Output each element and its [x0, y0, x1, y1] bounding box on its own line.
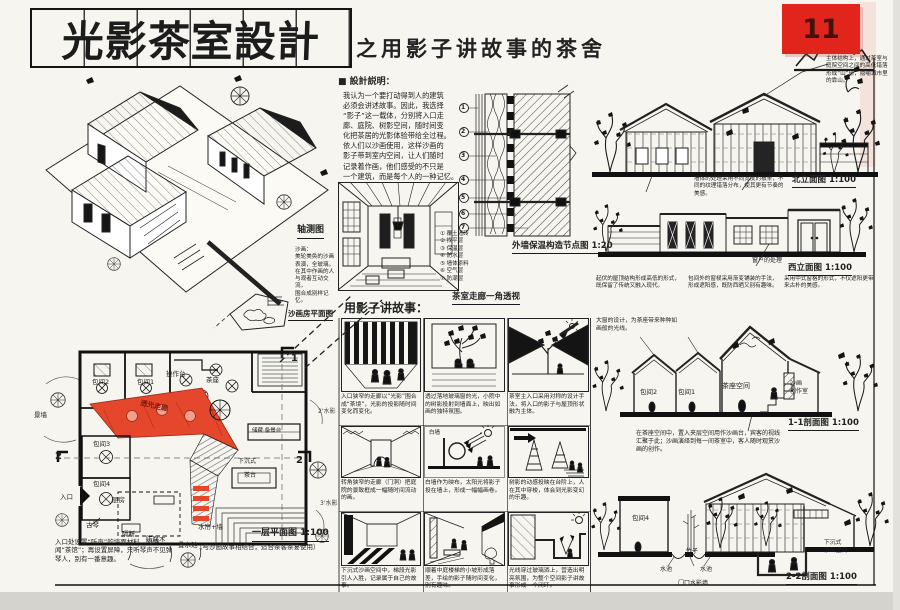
- presentation-board: 光影茶室設計 之用影子讲故事的茶舍 11 ■ 設計説明： 我认为一个要打动得到人…: [0, 0, 900, 610]
- scan-edge-bottom: [0, 592, 900, 610]
- plan-caption-note: （与沙画故事相结合，适合茶客茶宴使用）: [196, 543, 320, 551]
- design-notes-heading: ■ 設計説明：: [338, 77, 395, 89]
- north-elevation-note-top: 主体结构上，通过茶室与庭院空间之间的高低错落形成“山”形，隐喻城市里的靠山。: [826, 56, 888, 85]
- west-elevation-note-2: 包间外的窗棂采用渐变铺装的手法，形成遮阳感，既防西晒又别有趣味。: [688, 276, 778, 291]
- axonometric-drawing: [46, 75, 328, 304]
- plan-tea-table: 茶台: [244, 472, 256, 480]
- plan-sunken-label: 下沉式: [238, 458, 256, 466]
- plan-section-marker-2l: 2: [55, 450, 62, 463]
- story-caption-8: 顺着中庭楼梯的小坡形成落差，手绘的影子随时间变化，别有趣味。: [425, 568, 505, 591]
- design-notes-body: 我认为一个要打动得到人的建筑 必须会讲述故事。因此，我选择 “影子”这一载体，分…: [343, 91, 461, 182]
- story-caption-7: 下沉式沙画空间中，梯段光影引人入胜，记录属于自己的故事。: [341, 568, 421, 591]
- plan-guqin: 古琴: [86, 521, 99, 529]
- detail-callout-4: 4: [461, 176, 465, 183]
- scan-edge-right: [893, 0, 900, 610]
- story-caption-9: 光线穿过玻璃洒上，营造出明亮氛围，为整个空间影子讲故事形成一个闭环。: [509, 568, 589, 591]
- story-panel-3: [509, 319, 589, 392]
- plan-room-1: 包间1: [137, 378, 154, 386]
- west-elevation-note-1: 起伏的屋顶结构形成高低的形式，既保留了传统又融入现代。: [596, 276, 682, 291]
- section-1-1-drawing: [592, 327, 878, 431]
- story-panel-4: [342, 427, 421, 478]
- plan-caption: 一层平面图 1:100: [252, 528, 329, 542]
- story-caption-6: 树影的动感投映在台阶上，人在其中穿梭，体会到光影变幻的乐趣。: [509, 480, 589, 503]
- section11-studio: 沙画 创作室: [790, 380, 818, 396]
- section22-room-4: 包间4: [632, 514, 649, 522]
- detail-callout-6: 6: [461, 210, 465, 217]
- story-caption-4: 转角狭窄的走廊（门洞）把庭院的景致框成一幅随时间流动的画。: [341, 480, 421, 503]
- story-panel-2: [425, 319, 505, 392]
- storyboard-heading: 用影子讲故事：: [344, 301, 428, 317]
- section11-tea-space: 茶座空间: [722, 382, 750, 391]
- section11-note-bottom: 在茶座空间中，置入夹层空间用作沙画台，宾客的视线汇聚于此；沙画演绎到每一间茶室中…: [636, 430, 784, 453]
- plan-section-marker-2r: 2: [296, 454, 303, 467]
- plan-pool: 叠水池: [178, 541, 198, 549]
- detail-callout-5: 5: [461, 194, 465, 201]
- section-2-2-drawing: [591, 474, 889, 575]
- west-elevation-caption: 西立面图 1:100: [788, 263, 852, 276]
- section22-pool-2: 水池: [700, 566, 712, 574]
- page-subtitle: 之用影子讲故事的茶舍: [356, 36, 606, 63]
- mini-plan-sketch: [214, 294, 288, 330]
- section11-room-2: 包间2: [640, 388, 657, 396]
- story-caption-3: 茶室主入口采用对称的设计手法，将入口的影子与屋顶形状融为主体。: [509, 394, 589, 417]
- wall-detail-drawing: [460, 85, 577, 236]
- detail-callout-3: 3: [461, 152, 465, 159]
- sheet-number-badge: 11: [782, 4, 860, 54]
- plan-mark-b: 3'水影: [320, 500, 337, 508]
- section22-sunken-label: 下沉式 沙画空间: [824, 540, 856, 555]
- perspective-caption: 茶室走廊一角透视: [452, 292, 520, 305]
- axonometric-label: 轴测图: [297, 225, 324, 239]
- story-panel-1: [342, 319, 421, 392]
- plan-storage: 储藏·备餐台: [252, 428, 281, 435]
- section22-gate-wall: 门口水影墙: [678, 580, 708, 588]
- north-elevation-caption: 北立面图 1:100: [792, 175, 856, 188]
- plan-tea-area: 茶座: [206, 376, 219, 384]
- section22-bamboo: 竹子: [686, 548, 698, 556]
- north-elevation-note-bottom: 墙体的处理采用不同宽度的板条，不同的纹理错落分布，使其更有节奏的美感。: [694, 176, 788, 198]
- plan-room-2: 包间2: [92, 378, 109, 386]
- detail-callout-7: 7: [461, 224, 465, 231]
- plan-section-marker-1: 1: [291, 352, 298, 365]
- sheet-number: 11: [802, 14, 840, 45]
- detail-callout-1: 1: [461, 104, 465, 111]
- section11-note-top: 大窗的设计，为茶座带来种种如画般的光线。: [596, 318, 680, 333]
- wall-detail-legend: ① 覆土墙砖 ② 找平层 ③ 保温层 ④ 防水层 ⑤ 墙体原料 ⑥ 空气层 ⑦ …: [440, 231, 469, 283]
- mini-plan-caption: 沙画房平面图: [288, 309, 333, 321]
- page-title-text: 光影茶室設計: [61, 8, 321, 69]
- west-elevation-window-label: 窗户的处理: [752, 257, 782, 265]
- plan-water-curtain: 水帘+墙: [198, 523, 223, 531]
- wall-detail-caption: 外墙保温构造节点图 1:20: [512, 241, 613, 254]
- white-wall-label: 白墙: [429, 430, 440, 437]
- plan-side-note: 入口处设置“听声”的墙面材料，隔墙闻“茶馆”；再设置屏障，只听琴声不见弹琴人，别…: [55, 538, 173, 563]
- section11-caption: 1-1剖面图 1:100: [788, 418, 859, 431]
- story-caption-2: 透过落地玻璃窗的光，小院中的树影投射到墙面上，映出如画的独特氛围。: [425, 394, 505, 417]
- story-caption-5: 白墙作为映布，太阳光将影子投在墙上，形成一幅幅画卷。: [425, 480, 505, 495]
- section22-caption: 2-2剖面图 1:100: [786, 572, 857, 585]
- section11-room-1: 包间1: [678, 388, 695, 396]
- plan-scenic-wall: 景墙: [34, 411, 47, 419]
- plan-entrance: 入口: [60, 493, 73, 501]
- west-elevation-drawing: [593, 198, 873, 266]
- axonometric-note: 沙画： 美轮美奂的沙画 表演，全玻璃， 在其中作画的人 与观者互动交流， 围合成…: [295, 247, 337, 305]
- plan-kitchen: 厨房: [112, 496, 125, 504]
- story-panel-9: [509, 512, 589, 566]
- story-caption-1: 入口狭窄的走廊以“光影”围合成“茶境”，光影的投影随时间变化而变化。: [341, 394, 421, 417]
- plan-room-3: 包间3: [93, 440, 110, 448]
- plan-room-4: 包间4: [93, 480, 110, 488]
- west-elevation-note-3: 采用中式窗格的形式，不仅遮阳更带来古朴的美感。: [784, 276, 874, 291]
- page-title: 光影茶室設計: [30, 8, 352, 68]
- story-panel-7: [342, 513, 421, 566]
- detail-callout-2: 2: [461, 128, 465, 135]
- section22-pool-1: 水池: [660, 566, 672, 574]
- plan-mark-a: 2'水影: [318, 408, 335, 416]
- plan-counter: 操作台: [166, 370, 186, 378]
- story-panel-6: [509, 427, 589, 478]
- story-panel-8: [425, 513, 505, 566]
